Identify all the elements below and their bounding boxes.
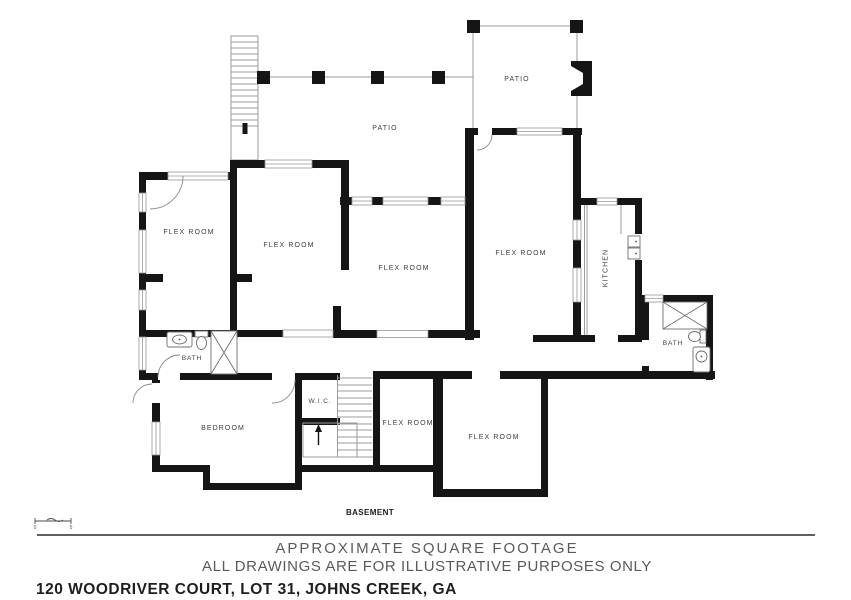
walls [139, 128, 715, 497]
shower-icon [211, 331, 237, 374]
label-flex-room-bottomright: FLEX ROOM [468, 434, 519, 441]
scale-bar: 0 5 [34, 518, 73, 531]
label-kitchen: KITCHEN [603, 249, 610, 287]
patio-and-exterior-stairs [231, 20, 592, 160]
footer-disclaimer-text: ALL DRAWINGS ARE FOR ILLUSTRATIVE PURPOS… [202, 558, 652, 575]
label-bath-left: BATH [182, 355, 202, 362]
cooktop-icon [626, 234, 642, 260]
stairs-up-arrow-icon [315, 424, 322, 445]
cased-opening [377, 331, 428, 338]
door-arc [133, 384, 152, 403]
room-labels: PATIO PATIO FLEX ROOM FLEX ROOM FLEX ROO… [163, 76, 683, 517]
label-patio-upper: PATIO [504, 76, 529, 83]
label-bath-right: BATH [663, 340, 683, 347]
label-flex-room-topright: FLEX ROOM [495, 250, 546, 257]
door-arc [477, 135, 492, 150]
footer-address-text: 120 WOODRIVER COURT, LOT 31, JOHNS CREEK… [36, 581, 457, 598]
understair-outline [303, 423, 357, 457]
footer: APPROXIMATE SQUARE FOOTAGE ALL DRAWINGS … [36, 535, 815, 598]
sink-icon [167, 332, 192, 347]
fixtures [167, 205, 710, 374]
stairs-direction-tick [243, 123, 248, 134]
label-basement: BASEMENT [346, 508, 394, 517]
label-flex-room-topleft: FLEX ROOM [163, 229, 214, 236]
interior-stairs [303, 375, 373, 457]
door-arc [272, 380, 295, 403]
interior-stairs-treads [338, 378, 372, 450]
label-flex-room-left: FLEX ROOM [263, 242, 314, 249]
exterior-stairs-outline [231, 36, 258, 160]
exterior-stairs-treads [231, 42, 258, 126]
scale-five: 5 [70, 525, 73, 531]
shower-icon [663, 302, 707, 329]
label-bedroom: BEDROOM [201, 425, 245, 432]
sink-icon [693, 347, 710, 372]
cased-opening [283, 330, 333, 337]
fireplace-icon [571, 61, 592, 96]
footer-approx-text: APPROXIMATE SQUARE FOOTAGE [275, 540, 578, 557]
label-flex-room-center: FLEX ROOM [378, 265, 429, 272]
label-patio-main: PATIO [372, 125, 397, 132]
label-wic: W.I.C. [308, 398, 331, 405]
label-flex-room-small: FLEX ROOM [382, 420, 433, 427]
door-arc [150, 176, 183, 209]
floor-plan-page: PATIO PATIO FLEX ROOM FLEX ROOM FLEX ROO… [0, 0, 851, 600]
floor-plan-canvas: PATIO PATIO FLEX ROOM FLEX ROOM FLEX ROO… [0, 0, 851, 600]
toilet-icon [195, 331, 208, 350]
patio-pillars [257, 20, 583, 84]
scale-zero: 0 [34, 525, 37, 531]
toilet-icon [689, 330, 707, 343]
